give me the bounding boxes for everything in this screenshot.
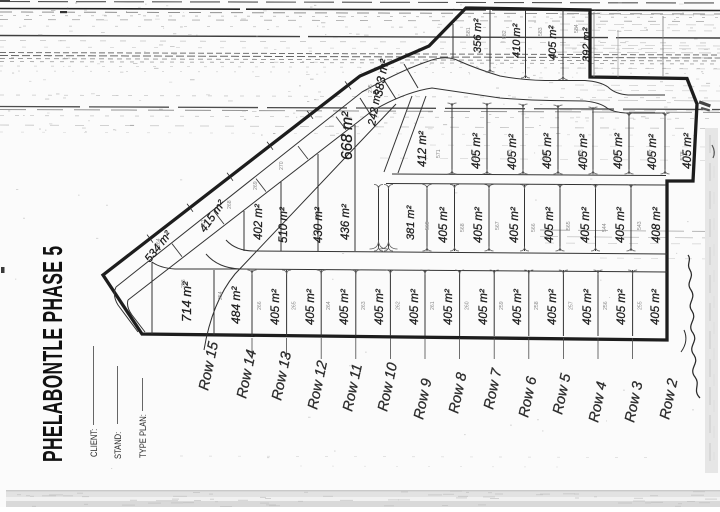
- svg-text:405 m²: 405 m²: [615, 206, 627, 243]
- svg-text:TYPE PLAN:: TYPE PLAN:: [137, 414, 148, 458]
- svg-text:254: 254: [218, 291, 224, 300]
- svg-text:405 m²: 405 m²: [613, 132, 625, 169]
- svg-text:256: 256: [603, 301, 609, 310]
- svg-text:543: 543: [637, 221, 643, 230]
- svg-text:405 m²: 405 m²: [547, 288, 559, 325]
- svg-text:405 m²: 405 m²: [616, 288, 628, 325]
- svg-text:405 m²: 405 m²: [512, 288, 524, 325]
- svg-text:405 m²: 405 m²: [473, 206, 485, 243]
- svg-text:573: 573: [508, 149, 514, 158]
- svg-text:405 m²: 405 m²: [438, 206, 450, 243]
- svg-text:405 m²: 405 m²: [682, 132, 694, 169]
- svg-text:262: 262: [395, 301, 401, 310]
- svg-text:257: 257: [568, 301, 574, 310]
- svg-text:571: 571: [436, 149, 442, 158]
- svg-text:405 m²: 405 m²: [471, 132, 483, 169]
- svg-text:575: 575: [579, 149, 585, 158]
- svg-text:261: 261: [430, 301, 436, 310]
- svg-text:510 m²: 510 m²: [278, 206, 290, 243]
- svg-text:668 m²: 668 m²: [339, 111, 356, 160]
- svg-text:574: 574: [543, 151, 549, 160]
- svg-text:430 m²: 430 m²: [313, 206, 325, 243]
- svg-text:405 m²: 405 m²: [582, 288, 594, 325]
- svg-text:381 m²: 381 m²: [405, 205, 417, 240]
- svg-text:258: 258: [534, 301, 540, 310]
- svg-text:269: 269: [253, 181, 259, 190]
- svg-text:259: 259: [499, 301, 505, 310]
- svg-text:405 m²: 405 m²: [409, 288, 421, 325]
- svg-text:260: 260: [465, 301, 471, 310]
- svg-text:STAND:: STAND:: [112, 432, 123, 459]
- svg-text:405 m²: 405 m²: [509, 206, 521, 243]
- svg-text:255: 255: [638, 301, 644, 310]
- svg-text:410 m²: 410 m²: [511, 23, 523, 58]
- svg-text:584: 584: [574, 24, 580, 33]
- svg-text:583: 583: [538, 27, 544, 36]
- svg-text:405 m²: 405 m²: [542, 132, 554, 169]
- svg-text:405 m²: 405 m²: [478, 288, 490, 325]
- svg-text:578: 578: [680, 151, 686, 160]
- svg-text:275: 275: [368, 84, 374, 93]
- svg-text:566: 566: [531, 223, 537, 232]
- svg-text:582: 582: [502, 30, 508, 39]
- svg-text:405 m²: 405 m²: [580, 206, 592, 243]
- svg-text:484 m²: 484 m²: [229, 286, 243, 324]
- svg-text:253: 253: [181, 279, 187, 288]
- svg-text:405 m²: 405 m²: [544, 206, 556, 243]
- svg-text:576: 576: [614, 151, 620, 160]
- svg-text:577: 577: [649, 149, 655, 158]
- svg-text:405 m²: 405 m²: [339, 288, 351, 325]
- svg-text:266: 266: [257, 301, 263, 310]
- svg-text:CLIENT:: CLIENT:: [88, 429, 99, 457]
- svg-text:402 m²: 402 m²: [253, 203, 265, 240]
- svg-text:392 m²: 392 m²: [581, 27, 593, 62]
- svg-text:405 m²: 405 m²: [374, 288, 386, 325]
- svg-text:567: 567: [495, 221, 501, 230]
- svg-text:581: 581: [466, 27, 472, 36]
- svg-text:544: 544: [602, 223, 608, 232]
- svg-text:268: 268: [227, 200, 233, 209]
- svg-text:412 m²: 412 m²: [417, 130, 429, 167]
- svg-text:565: 565: [566, 221, 572, 230]
- svg-text:405 m²: 405 m²: [270, 288, 282, 325]
- svg-text:569: 569: [425, 221, 431, 230]
- svg-text:408 m²: 408 m²: [651, 206, 663, 243]
- svg-text:568: 568: [460, 223, 466, 232]
- svg-text:405 m²: 405 m²: [305, 288, 317, 325]
- svg-text:267: 267: [201, 219, 207, 228]
- svg-text:270: 270: [279, 161, 285, 170]
- svg-text:405 m²: 405 m²: [443, 288, 455, 325]
- svg-text:436 m²: 436 m²: [340, 203, 352, 240]
- svg-text:263: 263: [361, 301, 367, 310]
- svg-text:405 m²: 405 m²: [547, 25, 559, 60]
- svg-text:264: 264: [326, 301, 332, 310]
- svg-text:264: 264: [156, 238, 162, 247]
- svg-text:356 m²: 356 m²: [472, 18, 484, 53]
- svg-text:405 m²: 405 m²: [650, 288, 662, 325]
- svg-text:265: 265: [292, 301, 298, 310]
- svg-text:572: 572: [472, 151, 478, 160]
- svg-text:PHELABONTLE PHASE 5: PHELABONTLE PHASE 5: [37, 246, 68, 462]
